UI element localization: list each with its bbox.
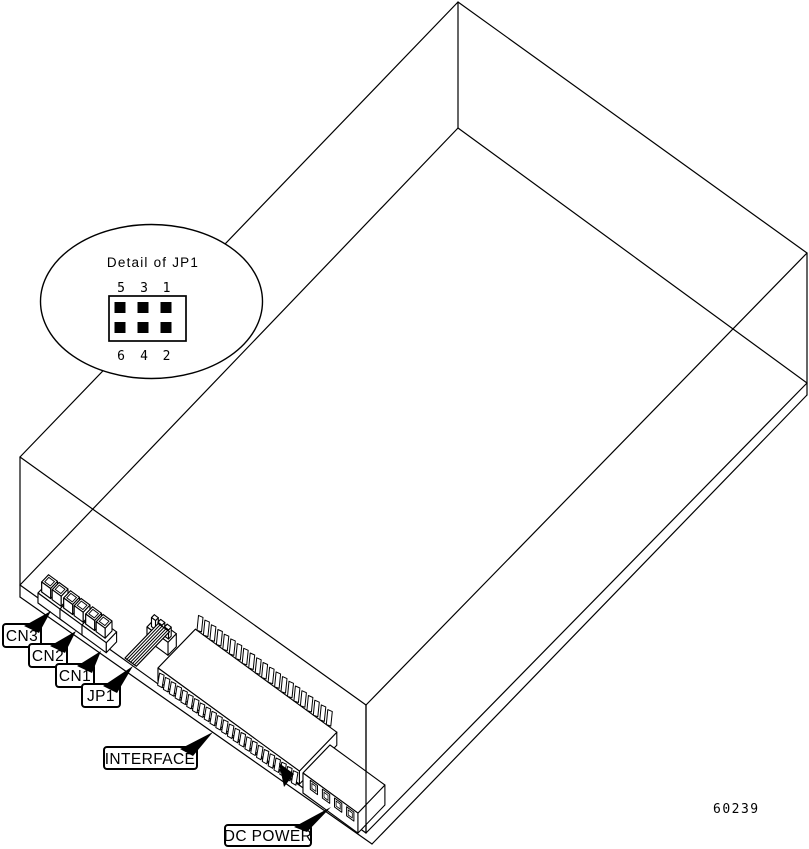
- cn2-label-text: CN2: [32, 648, 64, 665]
- dc-power-label: DC POWER: [224, 807, 331, 846]
- drawing-number: 60239: [713, 802, 760, 817]
- pin-label-1: 1: [163, 281, 171, 296]
- cn1-connector: [82, 607, 117, 653]
- pin-label-4: 4: [140, 349, 148, 364]
- pin-label-2: 2: [163, 349, 171, 364]
- pin-label-3: 3: [140, 281, 148, 296]
- bottom-flange-plate: [20, 383, 807, 844]
- jumper-pin-4: [138, 322, 149, 333]
- interface-label: INTERFACE: [104, 732, 213, 769]
- cn3-label: CN3: [3, 611, 51, 647]
- drive-isometric-diagram: Detail of JP1 5 3 1 6 4 2 60239 CN3 CN2 …: [0, 0, 809, 849]
- jumper-pin-2: [161, 322, 172, 333]
- jp1-label-text: JP1: [87, 688, 115, 705]
- jumper-pin-5: [115, 302, 126, 313]
- pin-label-6: 6: [117, 349, 125, 364]
- cn3-label-text: CN3: [6, 628, 38, 645]
- pin-label-5: 5: [117, 281, 125, 296]
- jumper-pin-1: [161, 302, 172, 313]
- cn1-label-text: CN1: [59, 668, 91, 685]
- jp1-detail-callout: Detail of JP1 5 3 1 6 4 2: [41, 225, 263, 379]
- chassis-wireframe: [20, 2, 807, 833]
- detail-callout-title: Detail of JP1: [107, 255, 199, 270]
- dc-power-label-text: DC POWER: [224, 828, 312, 845]
- jumper-pin-3: [138, 302, 149, 313]
- diagram-page: Detail of JP1 5 3 1 6 4 2 60239 CN3 CN2 …: [0, 0, 809, 849]
- jumper-pin-6: [115, 322, 126, 333]
- interface-label-text: INTERFACE: [105, 751, 196, 768]
